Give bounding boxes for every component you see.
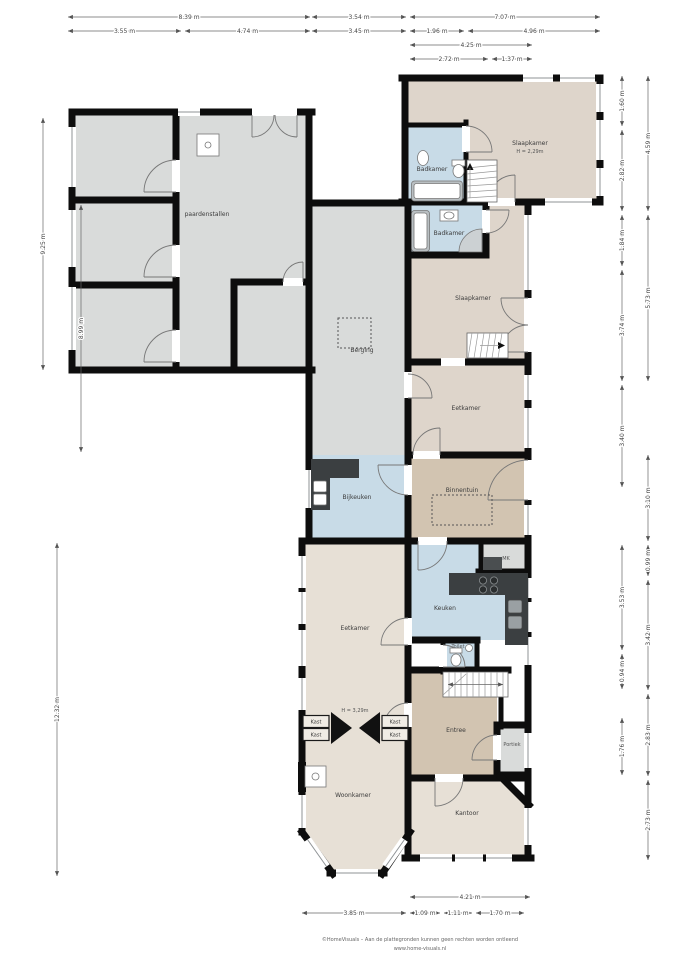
kast-label: Kast [390,733,401,739]
kast-label: Kast [390,720,401,726]
fireplace [305,766,326,787]
room-portiek [497,725,528,775]
label-slaapkamer-1: Slaapkamer [512,140,548,147]
dim: 2.83 m [645,724,652,745]
toilet-1 [452,160,465,178]
label-woonkamer-height: H = 3,29m [341,708,368,714]
kast-label: Kast [311,720,322,726]
room-woonkamer-strip [302,541,408,873]
footer-disclaimer: ©HomeVisuals – Aan de plattegronden kunn… [322,936,518,943]
dim: 8.39 m [178,14,199,21]
mk-unit [483,557,502,570]
dim: 1.76 m [619,736,626,757]
dim: 2.73 m [645,809,652,830]
label-entree: Entree [446,727,466,734]
label-slaapkamer-1-height: H = 2,29m [516,149,543,155]
dim: 1.96 m [426,28,447,35]
dim: 2.72 m [438,56,459,63]
floor-plan: Kast Kast Kast Kast paardenstallen Bergi… [0,0,679,960]
dim: 3.85 m [343,910,364,917]
dim: 1.11 m [447,910,468,917]
sink-2 [440,210,458,221]
dim: 1.09 m [414,910,435,917]
label-badkamer-1: Badkamer [417,166,448,173]
dim: 2.82 m [619,160,626,181]
dim: 3.55 m [114,28,135,35]
bathtub-1 [412,181,463,201]
label-kantoor: Kantoor [455,810,479,817]
dim: 5.73 m [645,287,652,308]
kitchen-sink [508,600,522,613]
stove-burner [490,586,497,593]
dim: 0.99 m [645,550,652,571]
dim: 4.74 m [237,28,258,35]
dim: 4.96 m [523,28,544,35]
dim: 3.45 m [348,28,369,35]
label-mk: MK [502,556,510,562]
footer-url: www.home-visuals.nl [394,946,447,952]
dim: 0.94 m [619,661,626,682]
sink-1 [418,151,429,166]
dim: 3.40 m [619,425,626,446]
label-toilet: Toilet [450,644,464,650]
bathtub-2 [412,211,430,252]
label-berging: Berging [350,347,373,354]
stove-burner [479,577,486,584]
label-keuken: Keuken [434,605,456,612]
stable-unit [197,134,219,156]
floor-plan-page: Kast Kast Kast Kast paardenstallen Bergi… [0,0,679,960]
dim: 9.25 m [40,233,47,254]
dim: 1.84 m [619,230,626,251]
staircase-top [467,160,498,202]
dim: 3.42 m [645,624,652,645]
label-eetkamer-2: Eetkamer [341,625,370,632]
label-bijkeuken: Bijkeuken [343,494,372,501]
dim: 1.60 m [619,90,626,111]
dim: 8.99 m [78,318,85,339]
room-binnentuin [408,455,528,541]
dimensions-right: 1.60 m 2.82 m 1.84 m 3.74 m 3.40 m 3.53 … [619,76,652,860]
stove-burner [479,586,486,593]
dimensions-top: 8.39 m 3.54 m 7.07 m 3.55 m 4.74 m 3.45 … [68,14,600,63]
dim: 4.21 m [459,894,480,901]
dim: 1.37 m [501,56,522,63]
dim: 4.59 m [645,133,652,154]
label-slaapkamer-2: Slaapkamer [455,295,491,302]
label-portiek: Portiek [503,742,520,748]
dim: 3.53 m [619,587,626,608]
room-paardenstallen [72,112,309,370]
dimensions-bottom: 4.21 m 3.85 m 1.09 m 1.11 m 1.70 m [302,894,530,917]
label-paardenstallen: paardenstallen [185,211,230,218]
dim: 12.32 m [54,697,61,722]
kitchen-sink [508,616,522,629]
dim: 3.54 m [348,14,369,21]
label-badkamer-2: Badkamer [434,230,465,237]
staircase-middle [467,333,508,358]
stove-burner [490,577,497,584]
label-binnentuin: Binnentuin [446,487,479,494]
label-woonkamer: Woonkamer [335,792,371,799]
staircase-entree [443,672,508,697]
label-eetkamer-1: Eetkamer [452,405,481,412]
kast-label: Kast [311,733,322,739]
dim: 3.10 m [645,487,652,508]
dim: 4.25 m [460,42,481,49]
footer: ©HomeVisuals – Aan de plattegronden kunn… [322,936,518,952]
dim: 1.70 m [489,910,510,917]
dim: 7.07 m [494,14,515,21]
dim: 3.74 m [619,315,626,336]
